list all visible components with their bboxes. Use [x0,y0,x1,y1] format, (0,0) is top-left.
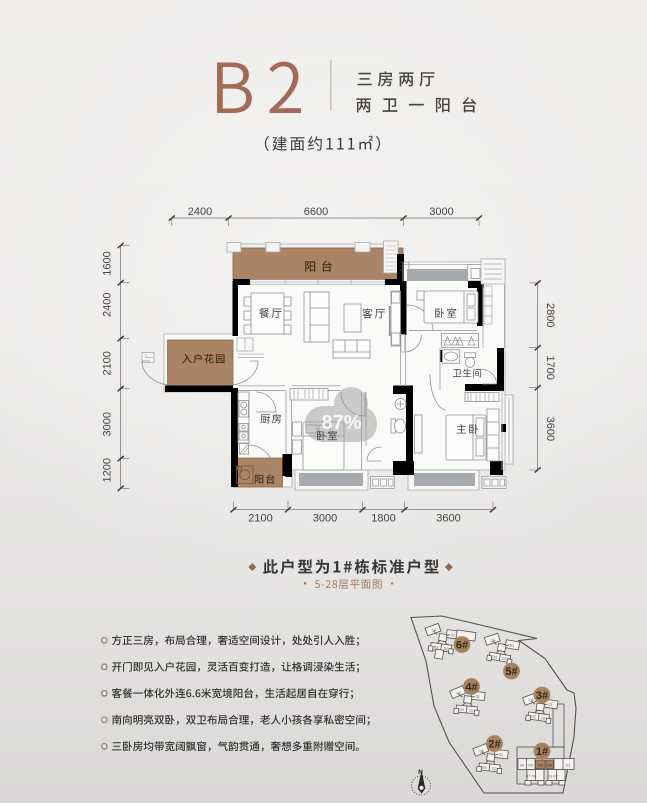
svg-text:3600: 3600 [436,513,460,525]
svg-text:3600: 3600 [544,417,556,441]
svg-text:2#: 2# [488,738,500,750]
svg-text:3000: 3000 [102,412,114,436]
svg-text:1#: 1# [536,746,548,758]
svg-text:87%: 87% [321,412,361,434]
svg-text:06: 06 [520,763,525,768]
svg-text:03 02: 03 02 [548,774,559,779]
svg-text:2100: 2100 [248,513,272,525]
svg-text:1600: 1600 [102,251,114,275]
svg-text:07 08: 07 08 [526,774,537,779]
svg-text:05: 05 [528,763,533,768]
svg-text:2400: 2400 [188,206,212,218]
svg-text:1200: 1200 [102,458,114,482]
svg-text:3000: 3000 [429,206,453,218]
svg-text:4#: 4# [465,681,477,693]
svg-text:2800: 2800 [544,303,556,327]
svg-text:3#: 3# [536,690,548,702]
svg-text:6#: 6# [456,639,468,651]
svg-text:01: 01 [566,763,571,768]
svg-text:03: 03 [538,763,543,768]
svg-text:2400: 2400 [102,292,114,316]
svg-text:5#: 5# [505,666,517,678]
svg-text:N: N [418,769,423,776]
svg-text:1800: 1800 [371,513,395,525]
svg-text:1700: 1700 [544,355,556,379]
svg-text:3000: 3000 [313,513,337,525]
svg-text:2100: 2100 [102,351,114,375]
svg-text:04: 04 [547,763,552,768]
svg-text:6600: 6600 [304,206,328,218]
